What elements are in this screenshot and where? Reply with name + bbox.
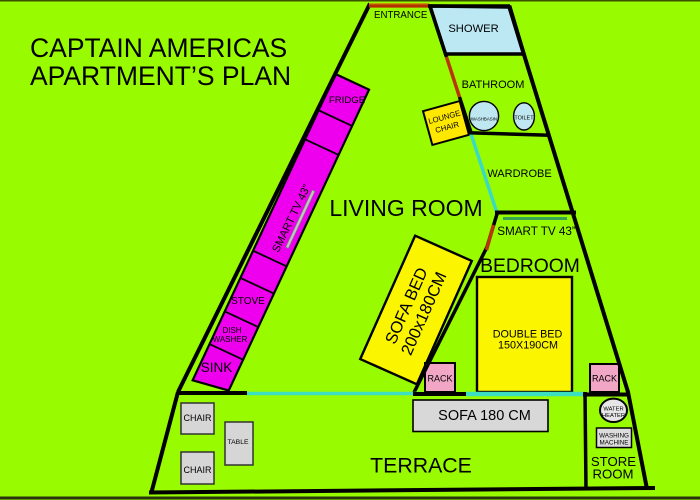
- svg-text:CAPTAIN AMERICAS: CAPTAIN AMERICAS: [30, 33, 287, 63]
- svg-text:DISH: DISH: [222, 326, 241, 335]
- svg-text:TABLE: TABLE: [227, 439, 248, 446]
- svg-text:WASHING: WASHING: [599, 433, 629, 440]
- svg-text:LIVING ROOM: LIVING ROOM: [329, 195, 482, 221]
- svg-text:WARDROBE: WARDROBE: [487, 168, 551, 180]
- svg-text:SINK: SINK: [201, 360, 233, 375]
- svg-text:HEATER: HEATER: [602, 413, 625, 419]
- svg-text:RACK: RACK: [592, 374, 617, 384]
- svg-text:MACHINE: MACHINE: [599, 440, 628, 447]
- svg-text:FRIDGE: FRIDGE: [329, 95, 365, 106]
- svg-text:CHAIR: CHAIR: [183, 465, 212, 475]
- svg-text:WASHER: WASHER: [213, 335, 248, 344]
- svg-text:150X190CM: 150X190CM: [498, 339, 558, 351]
- svg-text:APARTMENT’S PLAN: APARTMENT’S PLAN: [30, 61, 291, 91]
- svg-text:ROOM: ROOM: [592, 467, 633, 482]
- svg-text:WATER: WATER: [603, 407, 623, 413]
- svg-text:ENTRANCE: ENTRANCE: [374, 10, 428, 21]
- svg-text:RACK: RACK: [427, 374, 452, 384]
- svg-text:SMART TV 43”: SMART TV 43”: [497, 225, 576, 238]
- svg-text:TOILET: TOILET: [514, 116, 534, 122]
- svg-text:BEDROOM: BEDROOM: [480, 256, 580, 277]
- svg-text:BATHROOM: BATHROOM: [462, 79, 525, 91]
- svg-text:SHOWER: SHOWER: [448, 23, 498, 35]
- svg-text:CHAIR: CHAIR: [183, 413, 212, 423]
- svg-text:WASHBASIN: WASHBASIN: [471, 117, 497, 122]
- svg-text:TERRACE: TERRACE: [370, 454, 472, 478]
- svg-text:STOVE: STOVE: [231, 296, 265, 307]
- svg-text:SOFA 180 CM: SOFA 180 CM: [438, 408, 531, 424]
